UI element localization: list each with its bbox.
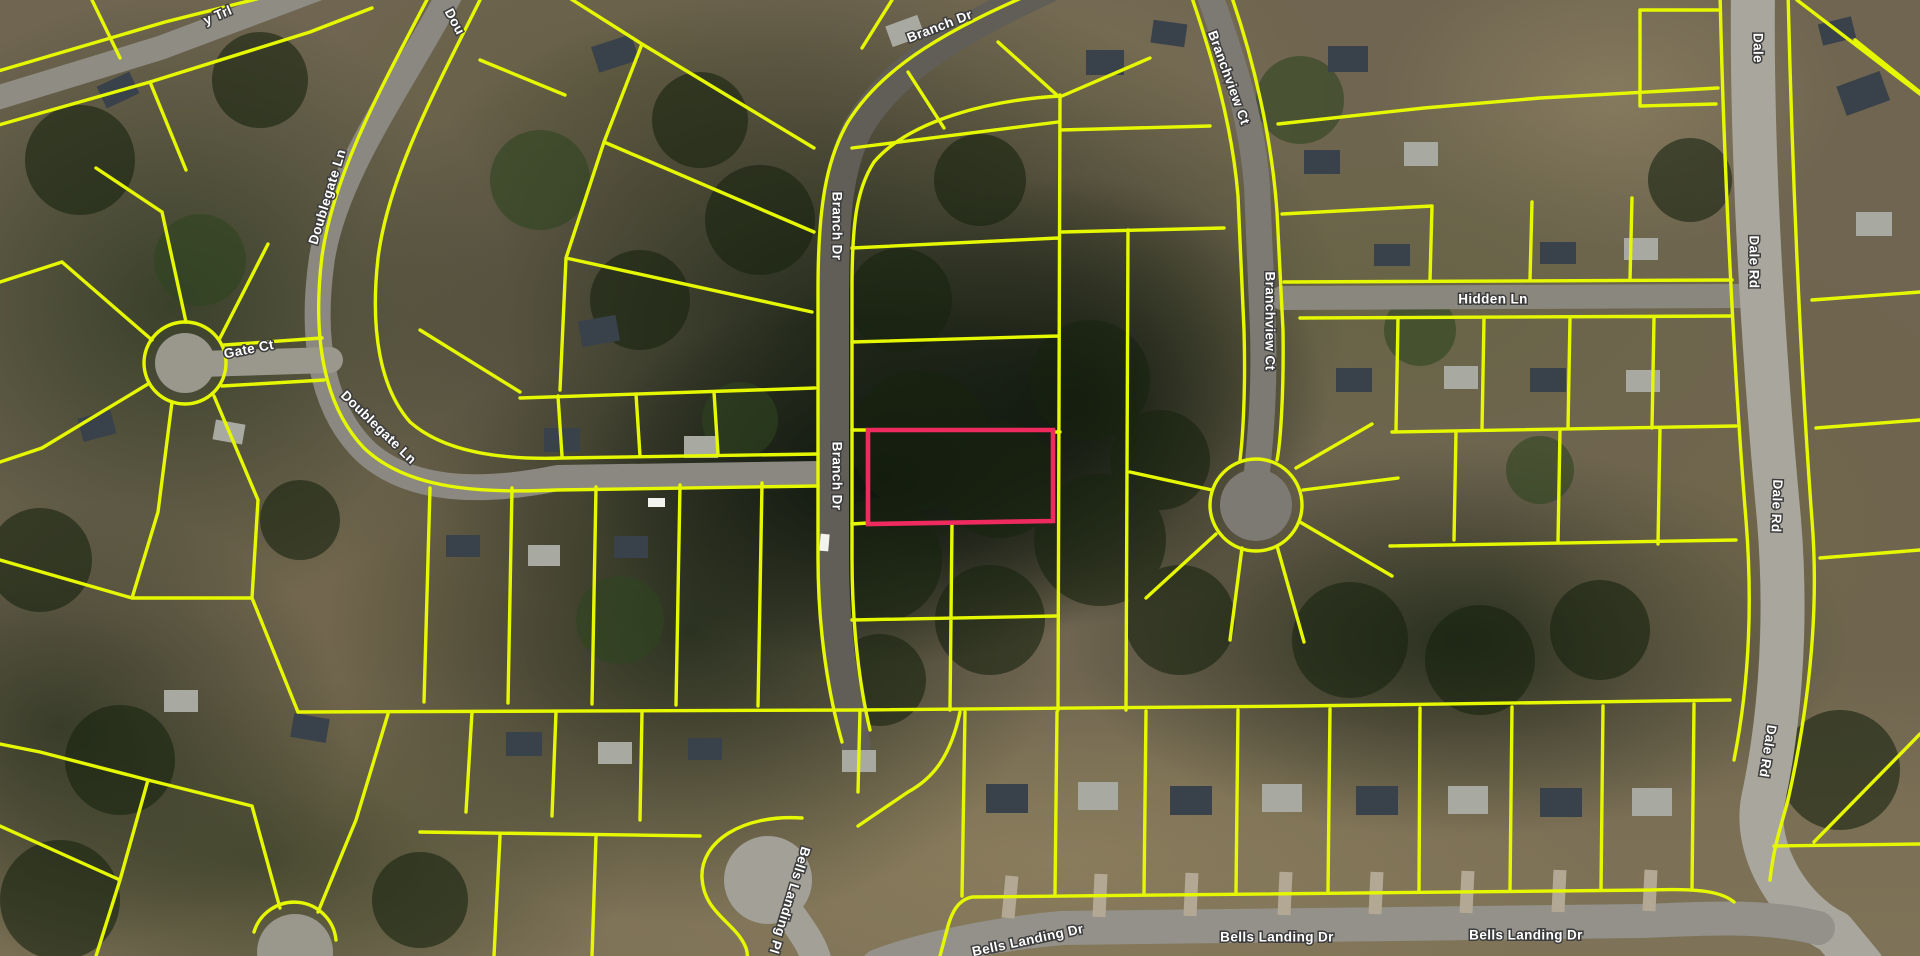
parcel-lines-bottom-boundary: [298, 700, 1730, 712]
street-label-bells-landing-dr-2: Bells Landing Dr: [1220, 930, 1334, 945]
bottom-left-culdesac: [257, 914, 333, 956]
street-label-bells-landing-dr-3: Bells Landing Dr: [1469, 928, 1583, 943]
street-label-hidden-ln: Hidden Ln: [1458, 292, 1528, 307]
vehicles: [648, 498, 830, 551]
road-gate-ct: [200, 360, 330, 364]
street-label-dale-top: Dale: [1750, 33, 1765, 63]
street-label-dale-rd-1: Dale Rd: [1746, 235, 1761, 288]
road-bells-landing-pl: [790, 914, 818, 956]
gate-ct-culdesac: [155, 333, 215, 393]
tree-canopy: [0, 32, 1900, 956]
street-label-dale-rd-2: Dale Rd: [1769, 479, 1786, 533]
parcel-lines-doublegate-south: [424, 483, 762, 706]
branchview-ct-culdesac: [1220, 469, 1292, 541]
street-label-branch-dr-mid: Branch Dr: [829, 192, 844, 261]
map-canvas[interactable]: y Trl Dou Branch Dr Dale Branchview Ct B…: [0, 0, 1920, 956]
street-label-branch-dr-lower: Branch Dr: [829, 442, 844, 511]
street-label-branchview-ct-2: Branchview Ct: [1262, 272, 1277, 371]
